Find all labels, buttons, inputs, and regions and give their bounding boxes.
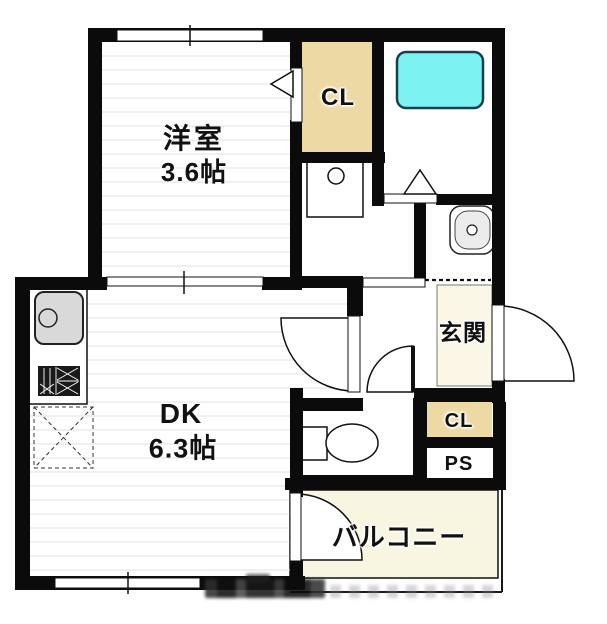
wall (290, 388, 303, 488)
wall (290, 42, 302, 70)
western-room-size: 3.6帖 (161, 159, 227, 185)
dk-door-leaf (348, 316, 360, 392)
wall (290, 152, 385, 163)
entrance-label: 玄関 (439, 322, 487, 345)
wall (347, 276, 363, 316)
bathtub-icon (397, 52, 483, 108)
watermark (246, 574, 270, 582)
washbasin-icon (450, 206, 494, 254)
gas-stove-icon (38, 366, 80, 396)
balcony-door-leaf (290, 493, 301, 561)
wall (262, 277, 302, 290)
wall (492, 28, 505, 306)
wall (88, 28, 102, 286)
closet-hall-label: CL (445, 411, 474, 431)
pipe-space-label: PS (445, 454, 474, 474)
western-room-label: 洋室 (163, 125, 225, 153)
wall (414, 388, 505, 402)
wall (15, 277, 30, 590)
sliding-door-washroom (363, 278, 425, 287)
toilet-door-leaf (411, 346, 415, 392)
front-door-leaf (492, 305, 504, 381)
washing-machine-pan-icon (307, 162, 363, 217)
floorplan: 洋室 3.6帖 DK 6.3帖 CL 玄関 CL PS バルコニー (0, 0, 607, 624)
wall (413, 398, 427, 488)
wall (290, 560, 303, 577)
wall (414, 203, 426, 279)
kitchen-faucet-icon (39, 309, 57, 327)
watermark (330, 585, 498, 598)
dk-size: 6.3帖 (149, 436, 218, 463)
wall (290, 120, 302, 290)
wall (285, 478, 503, 490)
wall (414, 437, 505, 448)
closet-top-label: CL (321, 86, 355, 110)
toilet-icon (302, 424, 378, 462)
balcony-label: バルコニー (332, 524, 466, 550)
wall (15, 277, 107, 290)
wall (372, 42, 384, 206)
dk-label: DK (160, 400, 202, 428)
floorplan-drawing (0, 0, 607, 624)
